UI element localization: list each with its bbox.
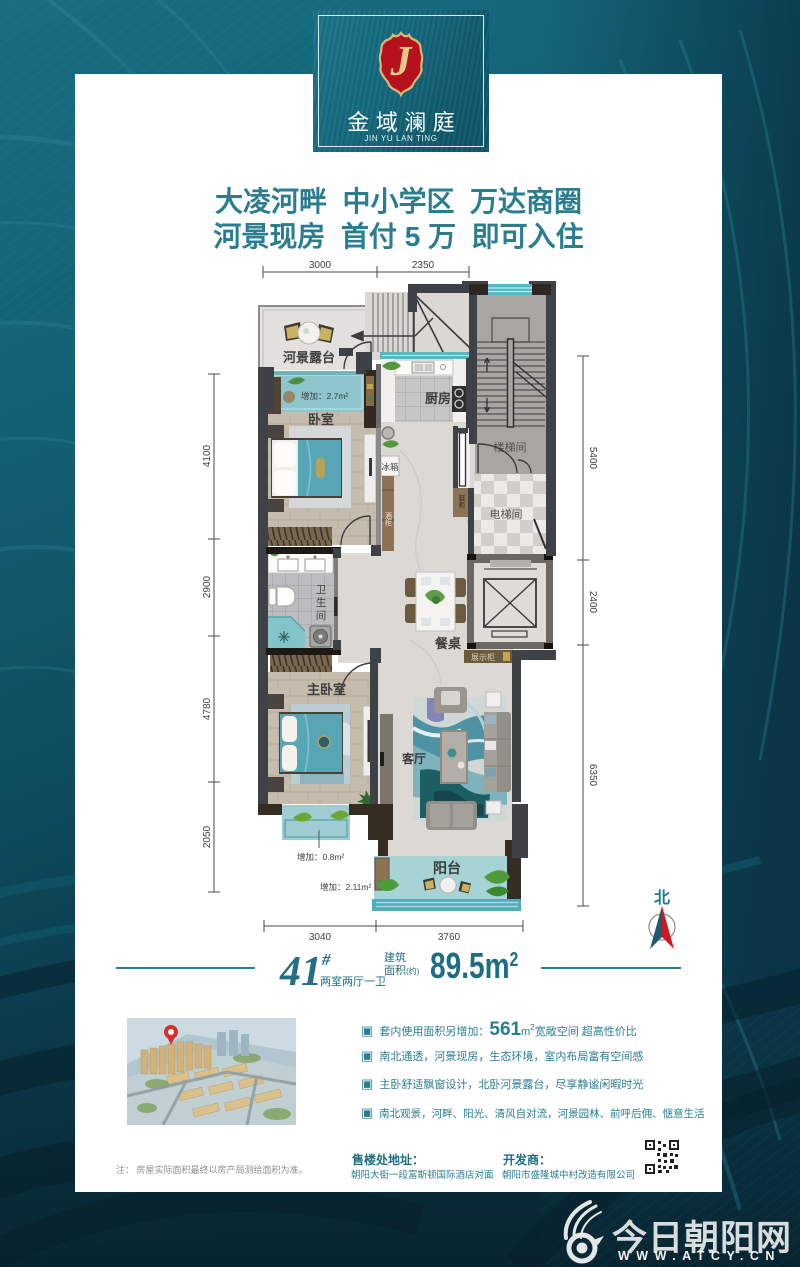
- svg-text:增加：0.8m²: 增加：0.8m²: [297, 852, 344, 862]
- svg-text:展示柜: 展示柜: [471, 652, 495, 662]
- svg-text:餐桌: 餐桌: [434, 636, 462, 651]
- svg-text:J: J: [390, 39, 414, 85]
- svg-text:卫: 卫: [316, 584, 327, 596]
- svg-text:北: 北: [654, 889, 670, 907]
- svg-text:间: 间: [316, 609, 327, 622]
- svg-text:6350: 6350: [587, 764, 598, 787]
- svg-text:酒柜: 酒柜: [385, 512, 393, 527]
- svg-text:客厅: 客厅: [401, 751, 426, 766]
- svg-text:增加：2.11m²: 增加：2.11m²: [320, 882, 371, 892]
- svg-text:电梯间: 电梯间: [490, 508, 523, 521]
- svg-text:4100: 4100: [202, 444, 213, 467]
- svg-text:主卧室: 主卧室: [307, 682, 346, 697]
- svg-text:楼梯间: 楼梯间: [494, 440, 527, 454]
- svg-text:4780: 4780: [202, 697, 213, 720]
- svg-text:5400: 5400: [587, 447, 598, 470]
- svg-text:2400: 2400: [587, 591, 598, 614]
- svg-text:阳台: 阳台: [433, 860, 461, 876]
- svg-text:冰箱: 冰箱: [381, 462, 399, 472]
- svg-text:生: 生: [316, 596, 327, 609]
- svg-text:2350: 2350: [412, 260, 435, 271]
- svg-text:厨房: 厨房: [425, 391, 451, 406]
- svg-text:2900: 2900: [202, 575, 213, 598]
- svg-text:2050: 2050: [202, 825, 213, 848]
- svg-text:卧室: 卧室: [308, 412, 334, 427]
- svg-text:河景露台: 河景露台: [283, 350, 335, 365]
- svg-text:增加：2.7m²: 增加：2.7m²: [301, 391, 348, 401]
- svg-text:3000: 3000: [309, 260, 332, 271]
